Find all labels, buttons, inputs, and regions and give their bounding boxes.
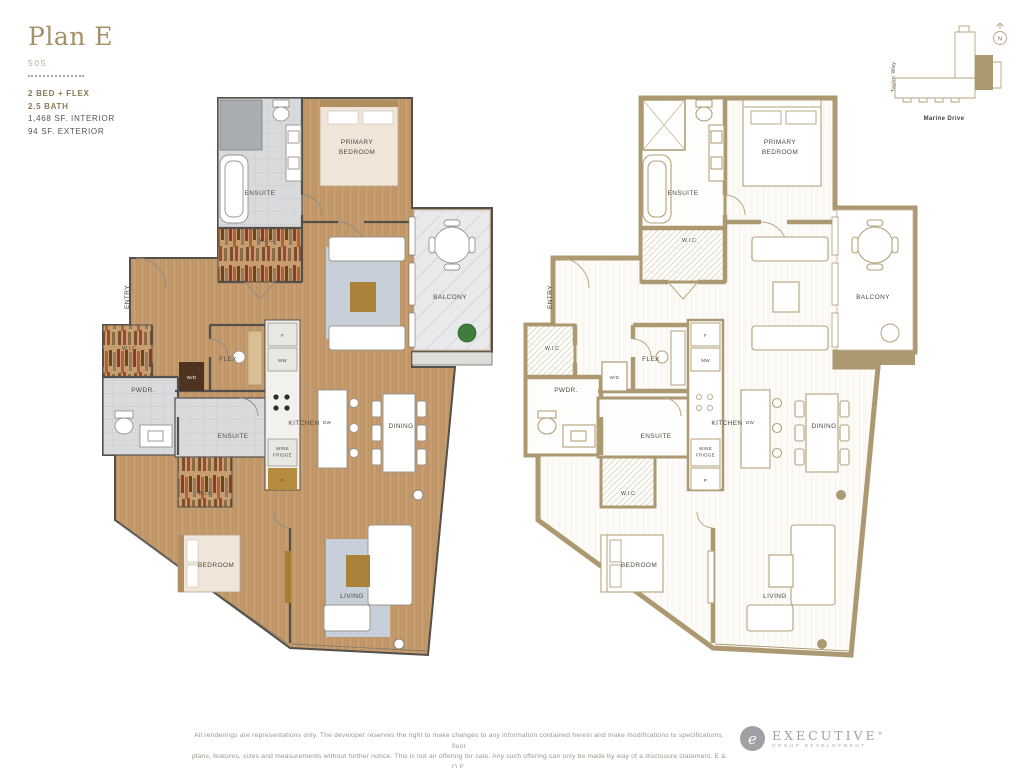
label-ensuite-2: ENSUITE [218,433,249,440]
label-dining: DINING [811,423,836,430]
floorplan-line-drawing: ENSUITE W.I.C. PRIMARY BEDROOM BALCONY E… [523,95,918,685]
label-dishwasher: DW [323,420,332,425]
label-entry: ENTRY [547,285,554,309]
disclaimer: All renderings are representations only.… [188,731,730,768]
label-wine-fridge-2: FRIDGE [273,453,292,458]
label-wd: W/D [610,375,620,380]
label-kitchen: KITCHEN [711,420,742,427]
registered-mark: ® [878,731,883,737]
compass-north-icon: N [994,23,1007,45]
logo-monogram-icon: e [740,726,765,751]
label-microwave: MW [278,358,287,363]
developer-logo: e Executive® Group Development [740,726,883,751]
unit-number: 505 [28,58,115,68]
label-ensuite-2: ENSUITE [641,433,672,440]
unit-geometry [103,98,492,655]
label-primary-bedroom-1: PRIMARY [341,139,374,146]
disclaimer-line-1: All renderings are representations only.… [188,731,730,752]
plan-title: Plan E [28,22,115,51]
street-marine-drive: Marine Drive [924,116,965,122]
floorplan-sheet: Plan E 505 2 BED + FLEX 2.5 BATH 1,468 S… [0,0,1024,768]
label-fridge: F [281,333,284,338]
label-primary-bedroom-2: BEDROOM [762,149,798,156]
label-wic: W.I.C. [259,238,275,244]
label-primary-bedroom-1: PRIMARY [764,139,797,146]
label-kitchen: KITCHEN [288,420,319,427]
label-entry: ENTRY [124,285,131,309]
label-wine-fridge-1: WINE [276,446,289,451]
street-taylor-way: Taylor Way [891,62,897,92]
label-bedroom: BEDROOM [621,562,657,569]
label-wic: W.I.C. [682,238,698,244]
label-wic-3: W.I.C. [198,491,214,497]
floorplan-rendered: ENSUITE W.I.C. PRIMARY BEDROOM BALCONY E… [100,95,495,685]
label-primary-bedroom-2: BEDROOM [339,149,375,156]
label-bedroom: BEDROOM [198,562,234,569]
label-pwdr: PWDR. [131,387,155,394]
label-ensuite: ENSUITE [668,190,699,197]
disclaimer-line-2: plans, features, sizes and measurements … [188,752,730,768]
unit-geometry [526,98,915,655]
label-wic-2: W.I.C. [545,346,561,352]
label-wic-3: W.I.C. [621,491,637,497]
label-pantry: P [704,478,707,483]
label-fridge: F [704,333,707,338]
label-dining: DINING [388,423,413,430]
label-microwave: MW [701,358,710,363]
logo-name: Executive® [772,728,883,742]
label-dishwasher: DW [746,420,755,425]
label-wine-fridge-2: FRIDGE [696,453,715,458]
logo-tagline: Group Development [772,744,883,749]
divider-dots [28,75,84,77]
label-balcony: BALCONY [856,294,890,301]
label-living: LIVING [340,593,364,600]
label-pwdr: PWDR. [554,387,578,394]
label-living: LIVING [763,593,787,600]
label-wd: W/D [187,375,197,380]
svg-text:N: N [998,37,1002,43]
unit-location-highlight [975,55,993,90]
label-pantry: P [281,478,284,483]
label-flex: FLEX [219,356,237,363]
label-flex: FLEX [642,356,660,363]
label-wic-2: W.I.C. [122,346,138,352]
label-wine-fridge-1: WINE [699,446,712,451]
label-ensuite: ENSUITE [245,190,276,197]
label-balcony: BALCONY [433,294,467,301]
